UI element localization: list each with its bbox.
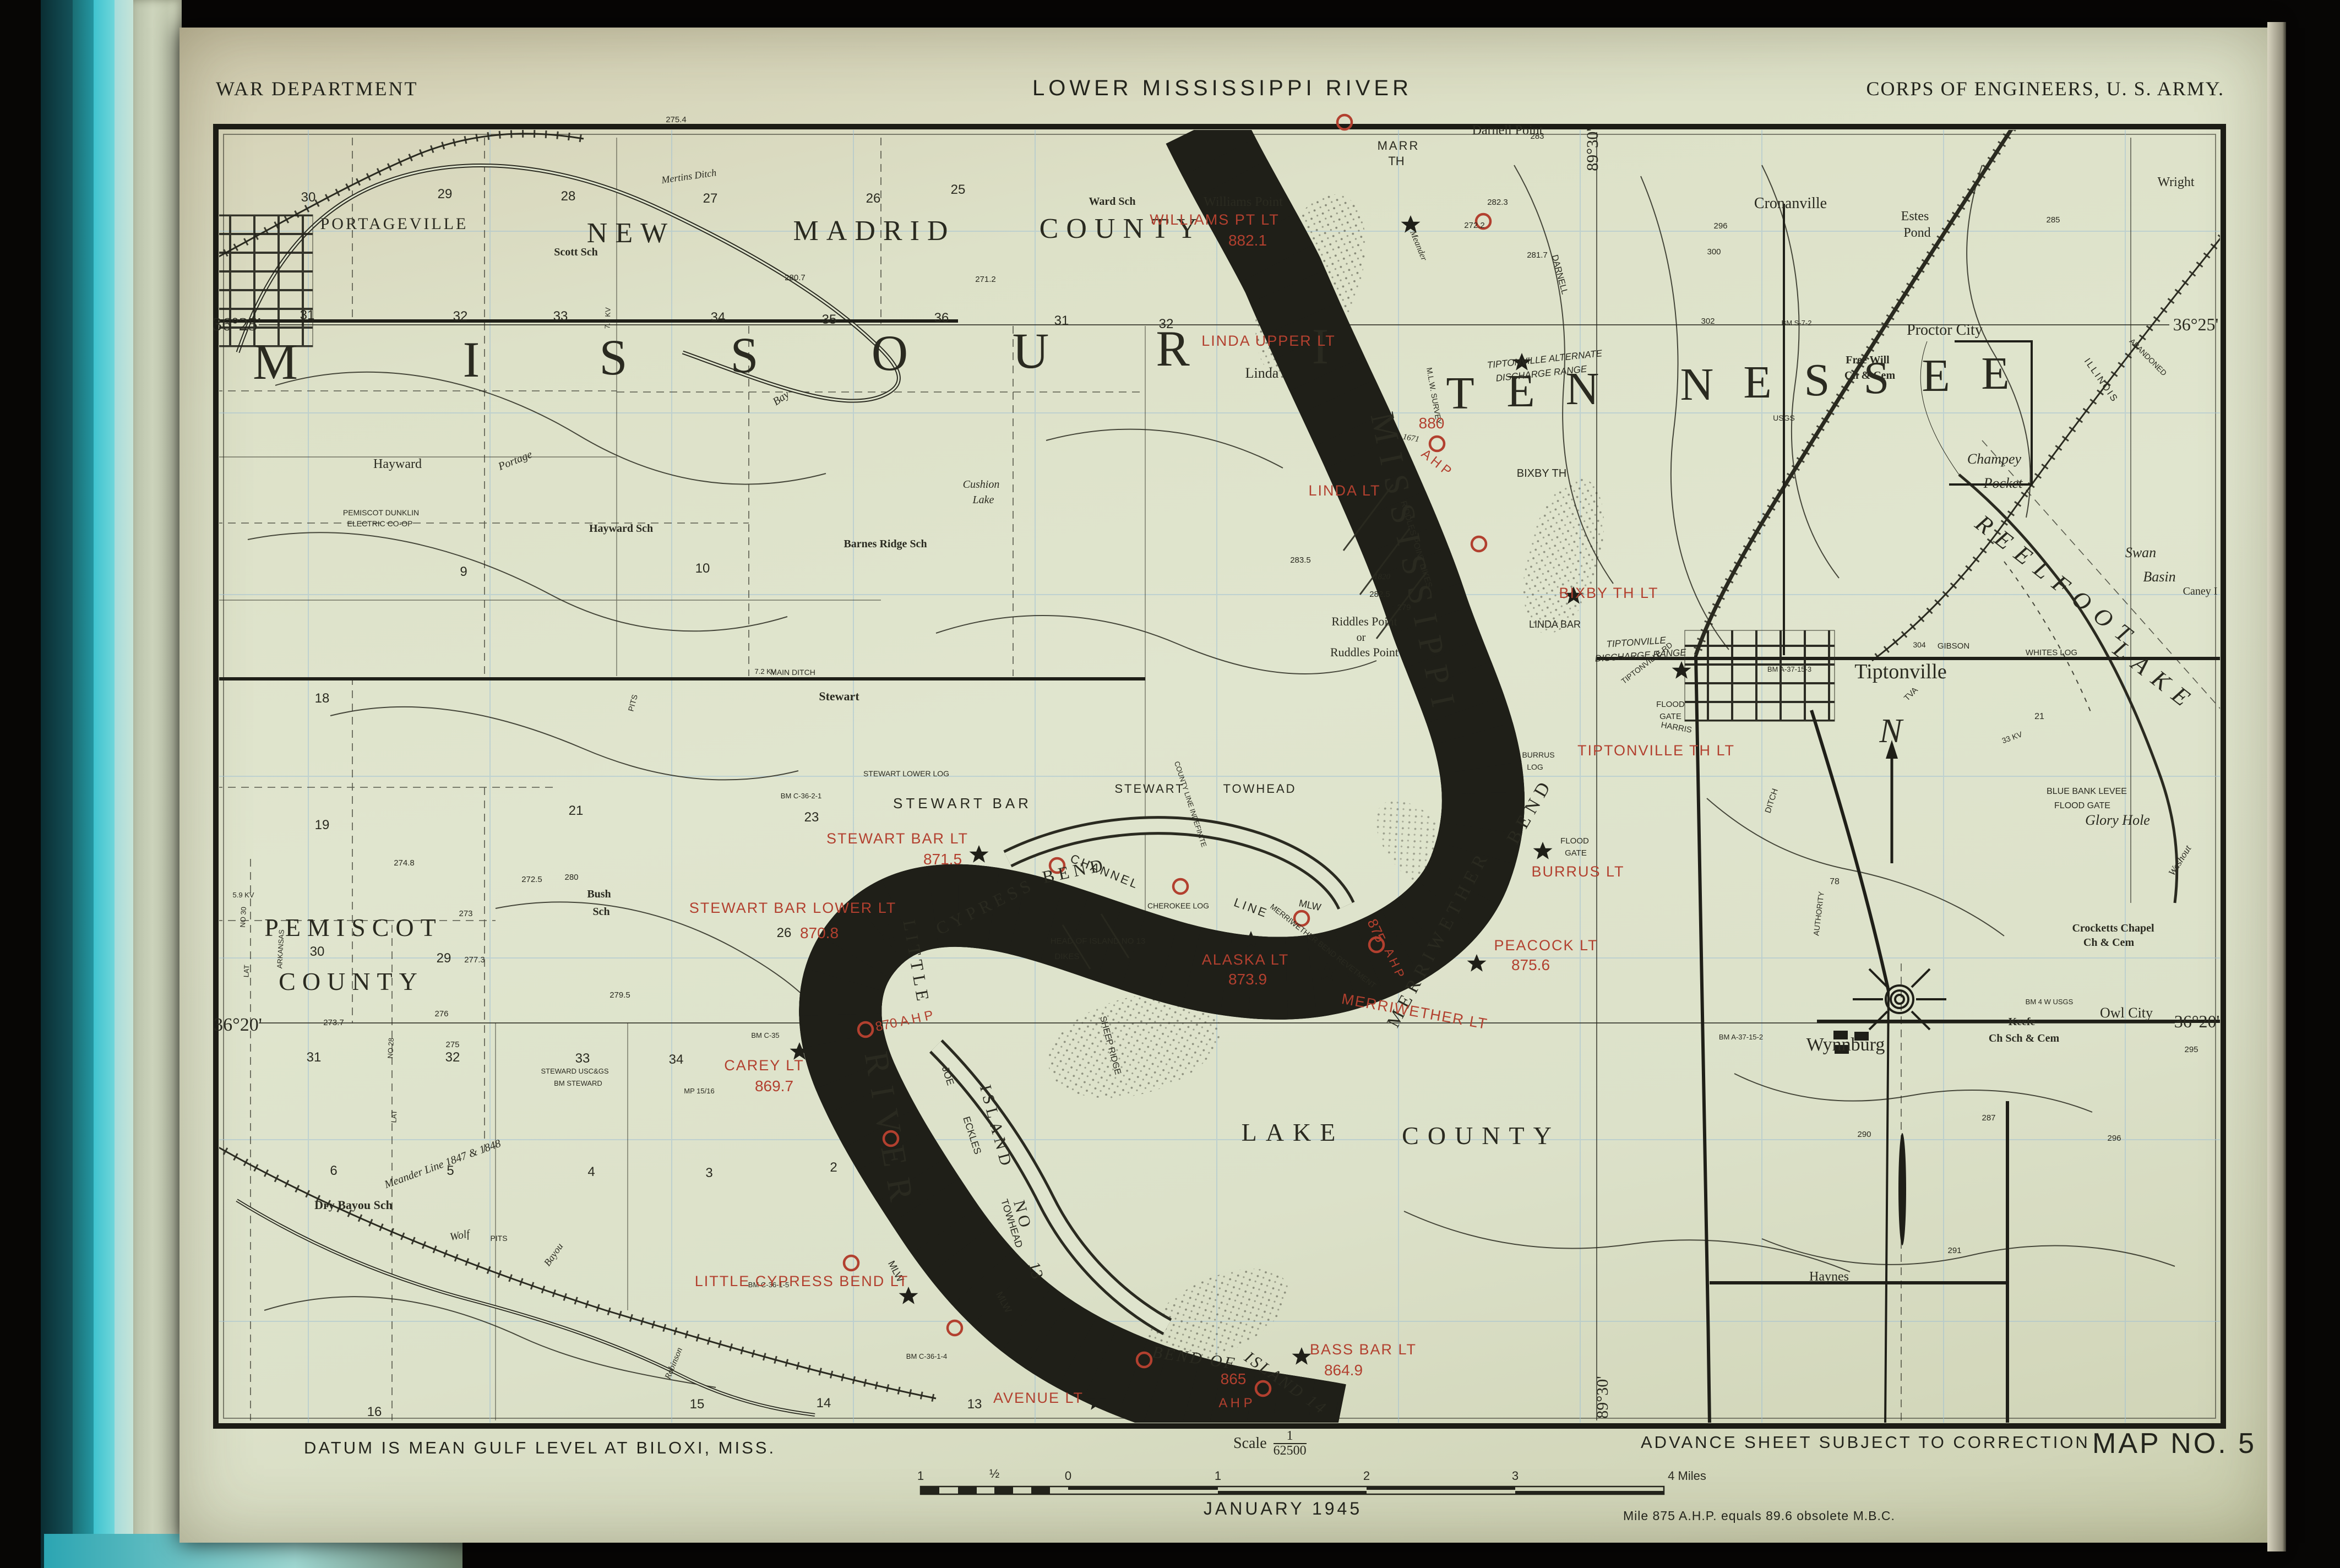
map-label: Meander xyxy=(1408,228,1429,263)
map-label: PEMISCOT DUNKLIN xyxy=(343,508,419,517)
map-label: BM 4 W USGS xyxy=(2026,998,2074,1006)
map-label: 78 xyxy=(1830,877,1840,886)
map-label: 26 xyxy=(866,191,881,206)
map-label: 0 xyxy=(1065,1469,1071,1483)
map-label: Champey xyxy=(1967,451,2022,467)
map-label: Owl City xyxy=(2100,1005,2153,1021)
map-label: 27 xyxy=(703,191,718,206)
map-label: PEACOCK LT xyxy=(1494,937,1598,954)
map-label: T xyxy=(1446,368,1474,419)
map-label: 1 xyxy=(917,1469,924,1483)
map-label: 282.3 xyxy=(1487,198,1508,207)
map-label: 4 Miles xyxy=(1668,1469,1706,1483)
map-label: 295 xyxy=(2184,1045,2198,1054)
map-label: 282.5 xyxy=(1369,590,1390,599)
map-linework xyxy=(215,126,2222,1425)
map-label: DIKES xyxy=(1054,952,1079,961)
map-label: 285 xyxy=(2046,215,2060,225)
map-label: BM S-7-2 xyxy=(1782,319,1812,327)
map-label: 33 KV xyxy=(2001,729,2024,745)
map-label: ABANDONED xyxy=(2128,336,2169,377)
map-label: BIXBY TH xyxy=(1517,467,1566,480)
map-label: N xyxy=(1879,712,1904,750)
map-label: or xyxy=(1357,631,1366,644)
map-label: LINE xyxy=(1232,895,1271,921)
map-label: Proctor City xyxy=(1907,322,1983,339)
map-label: 21 xyxy=(2034,712,2044,721)
map-label: STEWART LOWER LOG xyxy=(863,769,949,778)
map-label: 23 xyxy=(804,810,819,825)
map-label: PORTAGEVILLE xyxy=(320,215,469,233)
map-label: 1820 xyxy=(1374,573,1391,581)
map-label: ILLINOIS xyxy=(2082,356,2120,405)
map-label: 28 xyxy=(561,189,576,204)
map-label: 33 xyxy=(575,1051,590,1066)
map-label: GATE xyxy=(1565,848,1587,858)
map-label: GIBSON xyxy=(1938,641,1969,651)
map-label: PITS xyxy=(626,694,639,712)
map-label: 873.9 xyxy=(1228,971,1267,988)
scale-fraction: 1 62500 xyxy=(1274,1429,1307,1458)
map-label: BM C-36-2-1 xyxy=(781,792,821,800)
map-label: 287 xyxy=(1982,1113,1995,1123)
map-label: 32 xyxy=(1159,317,1174,331)
map-label: 273.7 xyxy=(323,1018,344,1027)
map-label: I xyxy=(463,331,480,388)
map-label: 4 xyxy=(587,1164,595,1179)
map-label: Hayward Sch xyxy=(589,522,653,535)
map-label: 271.2 xyxy=(975,275,996,284)
map-label: 34 xyxy=(711,310,726,325)
map-label: ARKANSAS xyxy=(275,929,286,969)
map-label: Dry Bayou Sch xyxy=(314,1198,393,1212)
map-label: STEWART xyxy=(1114,782,1184,796)
map-label: 89°30' xyxy=(1593,1376,1612,1418)
map-label: 280 xyxy=(564,873,578,882)
map-label: Sch xyxy=(592,906,610,918)
map-label: GATE xyxy=(1659,712,1681,721)
map-label: BURRUS xyxy=(1522,750,1554,759)
map-label: 30 xyxy=(301,190,316,205)
map-label: 302 xyxy=(1701,317,1715,326)
map-label: 2 xyxy=(1363,1469,1370,1483)
map-label: Williams Point xyxy=(1204,195,1283,209)
map-label: 32 xyxy=(445,1050,460,1065)
map-label: 10 xyxy=(695,561,710,576)
map-label: 276 xyxy=(434,1009,448,1019)
map-label: 29 xyxy=(438,187,453,202)
map-label: 864.9 xyxy=(1324,1362,1363,1379)
map-label: 25 xyxy=(951,182,966,197)
map-label: 882.1 xyxy=(1228,232,1267,249)
map-label: WHITES LOG xyxy=(2026,648,2077,657)
map-label: S xyxy=(599,329,627,385)
map-label: LAT xyxy=(389,1110,398,1123)
map-label: 89°30' xyxy=(1583,128,1602,171)
map-label: 275 xyxy=(445,1040,459,1049)
map-label: Washout xyxy=(2166,843,2194,878)
map-label: 36°20' xyxy=(214,1015,262,1035)
map-label: BM C-36-1-4 xyxy=(906,1352,947,1360)
light-star-icon xyxy=(970,845,989,863)
map-label: BM A-37-15-3 xyxy=(1767,665,1811,673)
map-label: NO 30 xyxy=(238,907,248,928)
map-label: Stewart xyxy=(819,689,859,703)
map-label: TVA xyxy=(1902,685,1920,703)
map-label: 283.5 xyxy=(1290,556,1311,565)
map-label: 36 xyxy=(934,311,949,325)
map-label: Free Will xyxy=(1846,354,1890,366)
map-label: 871.5 xyxy=(923,851,962,868)
map-label: 875.6 xyxy=(1511,956,1550,973)
map-label: Linda xyxy=(1245,365,1279,381)
map-label: Riddles Point xyxy=(1331,614,1397,628)
map-label: BIXBY TH LT xyxy=(1559,585,1658,601)
map-label: DARNELL xyxy=(1550,254,1570,296)
map-label: Lake xyxy=(972,494,994,506)
map-label: STEWART BAR LOWER LT xyxy=(689,900,897,916)
channel-marker-icon xyxy=(1173,879,1188,894)
map-label: 3 xyxy=(1512,1469,1519,1483)
map-label: Meander Line 1847 & 1848 xyxy=(382,1137,502,1191)
map-label: FLOOD xyxy=(1560,836,1589,846)
map-label: 36°25' xyxy=(2173,314,2219,334)
map-label: Pocket xyxy=(1983,475,2023,491)
map-date: JANUARY 1945 xyxy=(1167,1499,1398,1519)
map-label: 35 xyxy=(822,312,837,327)
map-label: DITCH xyxy=(1764,787,1780,814)
map-label: 7.2 KV xyxy=(603,307,612,329)
map-label: 29 xyxy=(437,951,451,966)
map-label: 274.8 xyxy=(394,858,415,868)
channel-marker-icon xyxy=(844,1256,858,1270)
map-label: 870.8 xyxy=(800,924,839,941)
map-label: Ward Sch xyxy=(1089,195,1135,208)
map-label: BLUE BANK LEVEE xyxy=(2047,787,2127,796)
map-label: 15 xyxy=(690,1397,705,1412)
map-label: TIPTONVILLE xyxy=(1606,635,1667,650)
map-label: Wolf xyxy=(449,1228,472,1243)
map-label: 33 xyxy=(553,309,568,324)
map-label: 869.7 xyxy=(755,1077,793,1095)
map-label: Pond xyxy=(1903,226,1930,240)
map-label: E xyxy=(1981,348,2009,399)
map-label: 7.2 KV xyxy=(754,667,776,676)
channel-marker-icon xyxy=(1430,437,1444,451)
map-label: BM A-37-15-2 xyxy=(1719,1033,1763,1041)
map-label: Ch & Cem xyxy=(2083,937,2135,949)
map-label: ECKLES xyxy=(961,1115,983,1156)
map-label: Estes xyxy=(1901,209,1929,224)
map-label: LINDA BAR xyxy=(1529,619,1581,630)
map-label: 31 xyxy=(300,308,315,323)
map-label: 5 xyxy=(447,1163,454,1178)
map-label: 272.2 xyxy=(1464,221,1485,230)
photo-scene: WAR DEPARTMENT LOWER MISSISSIPPI RIVER C… xyxy=(0,0,2340,1568)
map-label: 32 xyxy=(453,309,468,324)
map-label: 16 xyxy=(367,1404,382,1419)
light-star-icon xyxy=(1533,842,1553,859)
map-label: HEAD OF ISLAND NO 13 xyxy=(1051,937,1146,946)
map-label: TOWHEAD xyxy=(1223,782,1296,796)
map-label: ½ xyxy=(989,1467,999,1480)
map-label: LITTLE CYPRESS BEND LT xyxy=(695,1273,909,1289)
map-label: Bayou xyxy=(542,1241,565,1268)
light-star-icon xyxy=(1292,1347,1312,1365)
channel-marker-icon xyxy=(948,1321,962,1335)
map-label: NEW xyxy=(587,217,675,249)
map-label: FLOOD GATE xyxy=(2054,801,2110,810)
map-label: 304 xyxy=(1913,640,1926,649)
map-label: WILLIAMS PT LT xyxy=(1150,211,1280,228)
map-label: STEWART BAR xyxy=(893,795,1032,812)
map-number: MAP NO. 5 xyxy=(2092,1427,2256,1460)
advance-note: ADVANCE SHEET SUBJECT TO CORRECTION xyxy=(1641,1433,2090,1452)
scale-statement: Scale 1 62500 xyxy=(1233,1429,1307,1458)
map-label: 6 xyxy=(330,1163,337,1178)
map-label: 3 xyxy=(705,1166,712,1180)
map-label: LINDA UPPER LT xyxy=(1201,333,1336,349)
map-label: MAIN DITCH xyxy=(770,668,815,677)
map-label: TH xyxy=(1388,154,1404,168)
channel-marker-icon xyxy=(1472,537,1486,551)
map-label: 273 xyxy=(459,909,472,918)
map-label: BASS BAR LT xyxy=(1310,1341,1417,1358)
map-label: PITS xyxy=(490,1234,507,1243)
map-label: Swan xyxy=(2125,545,2156,560)
map-label: BURRUS LT xyxy=(1531,863,1624,880)
map-label: MP 15/16 xyxy=(684,1087,714,1095)
map-label: STEWART BAR LT xyxy=(826,830,968,847)
map-label: FLOOD xyxy=(1656,700,1685,709)
map-label: 21 xyxy=(569,803,584,818)
map-label: N xyxy=(1680,359,1714,410)
map-label: 277.3 xyxy=(464,955,485,965)
map-label: S xyxy=(730,327,758,383)
map-label: 13 xyxy=(967,1397,982,1412)
map-label: 34 xyxy=(669,1052,684,1067)
map-label: 36°20' xyxy=(2174,1011,2220,1031)
map-label: A H P xyxy=(1218,1396,1252,1411)
map-label: 14 xyxy=(817,1396,831,1411)
map-label: M xyxy=(253,334,298,390)
map-label: LOG xyxy=(1527,763,1543,771)
map-label: 31 xyxy=(1054,313,1069,328)
mile-equivalence-note: Mile 875 A.H.P. equals 89.6 obsolete M.B… xyxy=(1623,1509,1895,1523)
map-label: Tiptonville xyxy=(1854,660,1947,683)
map-label: ELECTRIC CO-OP xyxy=(347,519,412,528)
map-label: S xyxy=(1804,355,1830,406)
map-label: Bush xyxy=(587,888,611,900)
map-label: LAKE xyxy=(2108,635,2202,717)
map-label: LAT xyxy=(242,965,251,978)
map-label: 5.9 KV xyxy=(232,891,254,899)
map-label: 19 xyxy=(315,818,330,832)
map-label: STEWARD USC&GS xyxy=(541,1067,608,1075)
map-label: 281.7 xyxy=(1527,251,1548,260)
map-label: MADRID xyxy=(793,215,956,247)
map-label: 36°25' xyxy=(213,314,261,335)
map-label: COUNTY xyxy=(1402,1121,1560,1150)
map-label: Ruddles Point xyxy=(1330,645,1398,659)
map-label: 31 xyxy=(307,1050,322,1065)
map-label: TIPTONVILLE TH LT xyxy=(1577,742,1735,759)
map-label: 275.4 xyxy=(666,115,687,124)
map-label: E xyxy=(1743,357,1771,408)
map-label: Haynes xyxy=(1809,1270,1849,1284)
map-label: CHEROKEE LOG xyxy=(1147,901,1209,910)
map-canvas: 36°25'36°25'36°20'36°20'89°30'89°30'MISS… xyxy=(0,0,2340,1568)
map-label: Basin xyxy=(2143,569,2175,585)
map-label: 870 A H P xyxy=(874,1008,934,1035)
map-label: COUNTY xyxy=(279,967,424,995)
scale-bar xyxy=(921,1487,1664,1494)
map-label: 296 xyxy=(2107,1134,2121,1143)
map-label: Wynnburg xyxy=(1806,1035,1885,1055)
map-label: Barnes Ridge Sch xyxy=(844,538,927,550)
map-label: PEMISCOT xyxy=(264,913,442,941)
map-label: Ch & Cem xyxy=(1844,369,1896,382)
map-label: 283 xyxy=(1530,132,1544,141)
map-label: Scott Sch xyxy=(554,246,597,258)
map-label: Hayward xyxy=(373,457,422,471)
map-label: LINDA LT xyxy=(1308,482,1380,499)
map-label: Glory Hole xyxy=(2085,812,2150,828)
map-label: Caney I xyxy=(2183,585,2218,597)
map-label: Wright xyxy=(2157,175,2194,189)
map-label: REELFOOT xyxy=(1970,509,2145,654)
map-label: HARRIS xyxy=(1660,720,1693,735)
map-label: 296 xyxy=(1713,221,1727,231)
map-label: 279 xyxy=(1397,603,1411,612)
map-label: LAKE xyxy=(1242,1118,1345,1146)
map-label: 30 xyxy=(310,944,325,959)
map-label: Crocketts Chapel xyxy=(2072,922,2154,934)
map-label: Mertins Ditch xyxy=(660,167,717,186)
map-label: USGS xyxy=(1773,413,1795,422)
map-label: 280.7 xyxy=(785,273,806,282)
scale-word: Scale xyxy=(1233,1435,1267,1452)
map-label: Portage xyxy=(496,448,534,473)
map-label: 865 xyxy=(1221,1370,1247,1387)
datum-note: DATUM IS MEAN GULF LEVEL AT BILOXI, MISS… xyxy=(304,1438,776,1458)
light-star-icon xyxy=(1467,954,1487,972)
map-label: Keefe xyxy=(2009,1016,2036,1028)
map-label: 18 xyxy=(315,691,330,706)
map-label: DISCHARGE RANGE xyxy=(1595,647,1687,664)
map-label: BM C-35 xyxy=(751,1031,779,1039)
map-label: MARR xyxy=(1378,139,1420,153)
map-label: Cronanville xyxy=(1754,195,1827,212)
map-label: 26 xyxy=(777,925,792,940)
map-label: 1 xyxy=(1215,1469,1221,1483)
map-label: CAREY LT xyxy=(724,1057,804,1074)
map-label: ALASKA LT xyxy=(1202,951,1289,968)
map-label: 272.5 xyxy=(521,875,542,884)
map-label: Ch Sch & Cem xyxy=(1989,1032,2060,1044)
map-label: BM STEWARD xyxy=(554,1079,602,1087)
map-label: AVENUE LT xyxy=(993,1390,1084,1406)
map-label: 9 xyxy=(460,564,467,579)
map-label: 279.5 xyxy=(610,990,630,1000)
map-label: AUTHORITY xyxy=(1811,891,1826,937)
map-label: 300 xyxy=(1707,247,1721,257)
map-label: E xyxy=(1922,350,1950,401)
map-label: 2 xyxy=(830,1160,837,1175)
map-label: O xyxy=(872,325,908,381)
map-label: 291 xyxy=(1947,1246,1961,1255)
map-label: 290 xyxy=(1857,1130,1871,1139)
map-label: 880 xyxy=(1419,415,1445,432)
map-label: NO 28 xyxy=(386,1038,395,1059)
map-label: U xyxy=(1013,323,1049,379)
north-arrow-icon xyxy=(1886,740,1898,863)
map-label: Cushion xyxy=(963,478,1000,491)
